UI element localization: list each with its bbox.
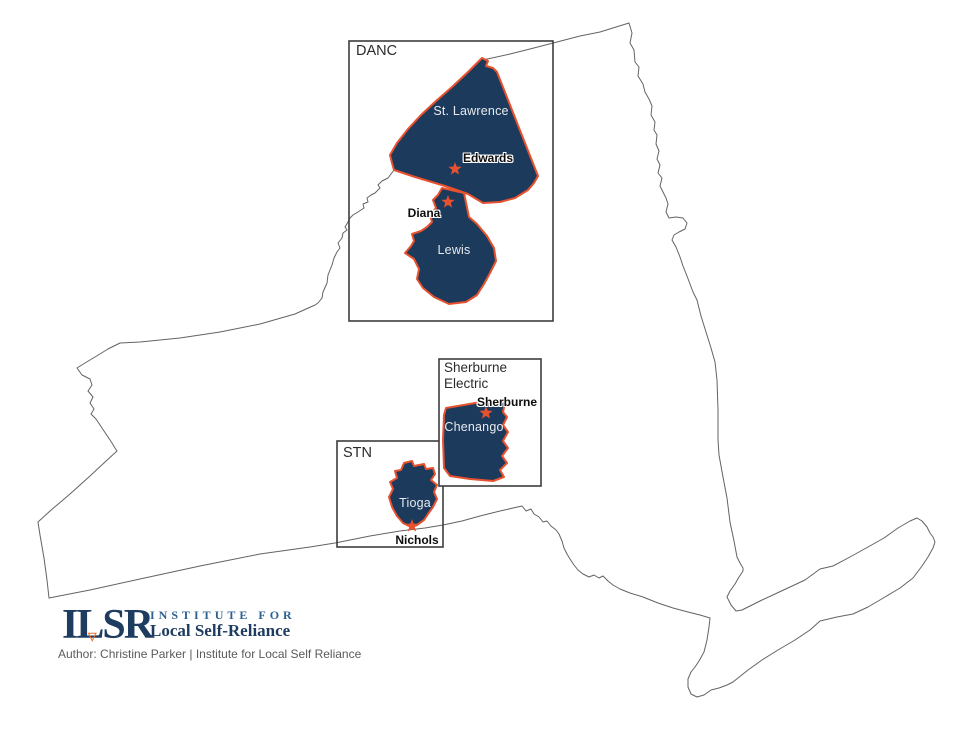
stn-box-title: STN: [343, 445, 372, 461]
ilsr-logo-local-self-reliance: Local Self-Reliance: [150, 621, 290, 641]
chenango-county-shape: [443, 400, 508, 481]
sherburne-electric-box-title-line1: Sherburne: [444, 360, 507, 376]
ilsr-logo-triangle-icon: ▽: [88, 630, 96, 643]
sherburne-electric-box-title-line2: Electric: [444, 376, 488, 392]
ilsr-logo-wordmark: ILSR: [62, 601, 152, 649]
tioga-county-shape: [389, 461, 437, 527]
danc-box-title: DANC: [356, 43, 397, 59]
st-lawrence-county-shape: [390, 58, 538, 203]
author-credit: Author: Christine Parker | Institute for…: [58, 647, 361, 661]
map-canvas: DANC Sherburne Electric STN St. Lawrence…: [0, 0, 960, 741]
